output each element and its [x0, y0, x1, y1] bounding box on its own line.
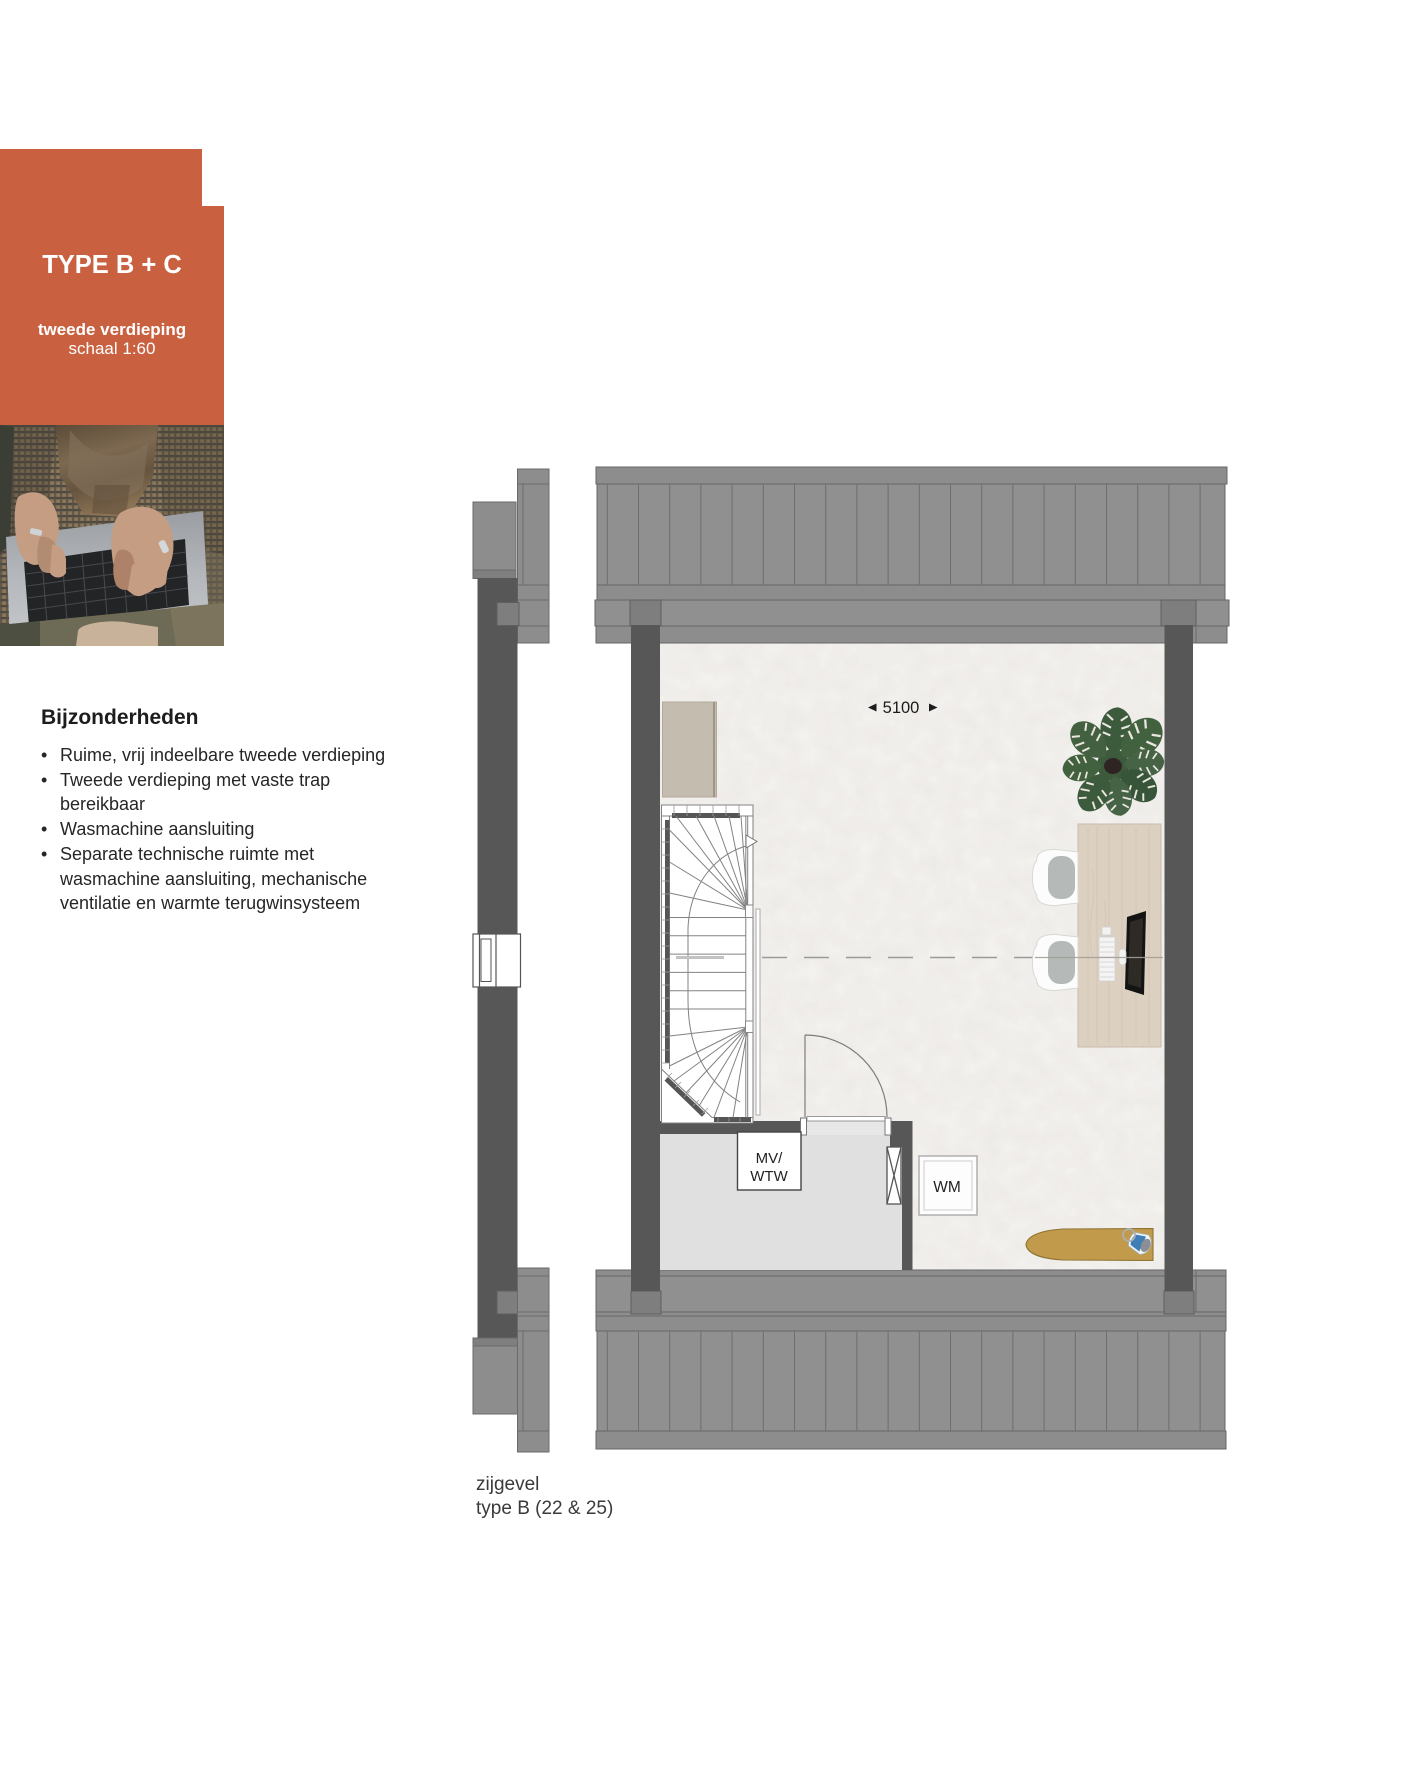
svg-text:MV/: MV/ — [756, 1150, 784, 1167]
svg-text:5100: 5100 — [883, 699, 920, 717]
svg-text:WTW: WTW — [750, 1168, 788, 1185]
svg-text:WM: WM — [933, 1179, 961, 1196]
